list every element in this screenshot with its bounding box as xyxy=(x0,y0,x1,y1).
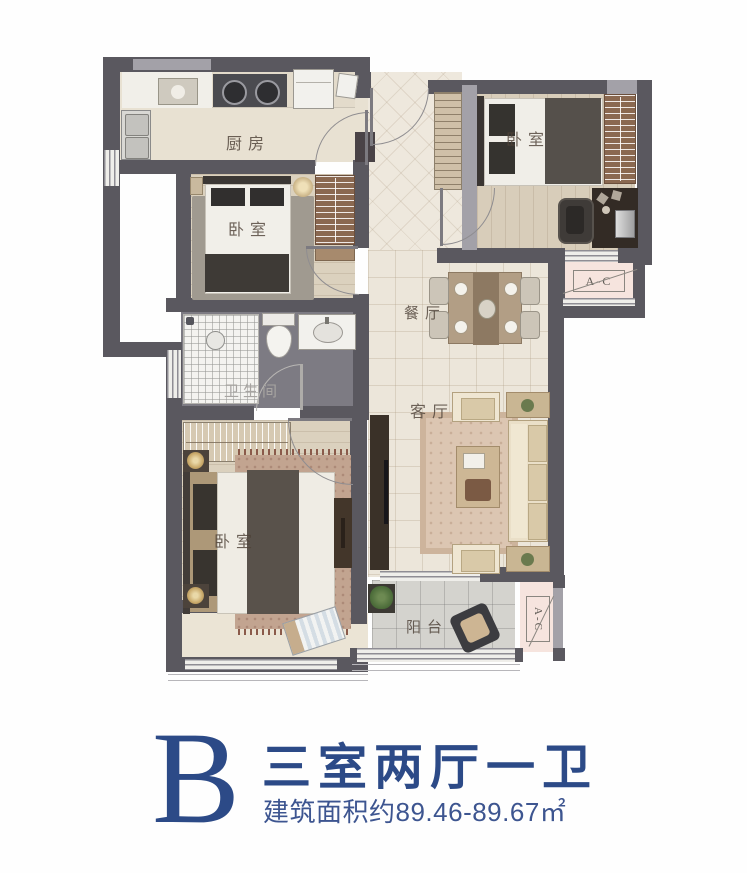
wall-segment xyxy=(166,298,368,312)
window-sill xyxy=(352,664,520,671)
dining-chair-icon xyxy=(520,277,540,305)
wall-segment xyxy=(553,648,565,661)
wall-segment xyxy=(119,160,315,174)
room-label-bedroom-east: 卧室 xyxy=(506,126,550,150)
desk-chair-icon xyxy=(558,198,594,244)
floor-plan: A-C A-C 厨房 卧室 卧室 餐厅 卫生间 客厅 卧室 阳台 xyxy=(0,0,747,700)
shoe-cabinet-icon xyxy=(434,92,462,190)
stove-icon xyxy=(213,74,287,107)
nightstand-icon xyxy=(190,177,203,195)
desk-icon xyxy=(592,188,638,248)
wall-segment xyxy=(548,310,564,577)
kitchen-door-leaf xyxy=(365,110,368,165)
sofa-icon xyxy=(508,420,548,542)
side-table-icon xyxy=(506,392,550,418)
window xyxy=(167,350,181,398)
wall-segment xyxy=(553,575,565,588)
armchair-icon xyxy=(452,544,500,574)
corner-shelf-icon xyxy=(335,73,358,100)
layout-name: 三室两厅一卫 xyxy=(262,728,598,799)
bedroom-north-door-leaf xyxy=(306,246,358,249)
bedroom-east-door-leaf xyxy=(440,188,443,246)
wall-segment xyxy=(103,57,120,357)
kitchen-sink-icon xyxy=(121,110,151,160)
dining-chair-icon xyxy=(520,311,540,339)
side-table-icon xyxy=(506,546,550,572)
room-label-bathroom: 卫生间 xyxy=(224,380,281,401)
window-sill xyxy=(168,674,368,681)
window xyxy=(185,659,337,670)
room-label-balcony: 阳台 xyxy=(406,616,448,637)
window xyxy=(104,150,119,186)
entry-door-leaf xyxy=(370,88,373,146)
wall-segment-light xyxy=(553,588,563,648)
wall-segment xyxy=(176,174,191,312)
cutting-board-icon xyxy=(158,78,198,105)
dining-chair-icon xyxy=(429,277,449,305)
bathroom-vanity-icon xyxy=(298,314,356,350)
room-label-dining: 餐厅 xyxy=(404,302,446,323)
plant-icon xyxy=(368,584,395,613)
wardrobe-icon xyxy=(604,94,636,184)
unit-letter: B xyxy=(152,712,240,844)
floorplan-page: { "floor_plan": { "rooms": [ {"id": "kit… xyxy=(0,0,747,873)
ac-unit-label-box: A-C xyxy=(526,596,550,642)
window xyxy=(565,250,618,262)
fridge-icon xyxy=(293,69,334,109)
area-text: 建筑面积约89.46-89.67㎡ xyxy=(263,792,566,829)
room-label-bedroom-north: 卧室 xyxy=(228,216,272,240)
armchair-icon xyxy=(452,392,500,422)
wardrobe-icon xyxy=(315,175,355,245)
nightstand-medallion-icon xyxy=(183,584,209,608)
dining-table-icon xyxy=(448,272,522,344)
nightstand-medallion-icon xyxy=(183,450,209,472)
tv-cabinet-icon xyxy=(370,415,389,570)
room-label-kitchen: 厨房 xyxy=(226,130,270,154)
wall-segment xyxy=(637,80,652,265)
wall-segment xyxy=(353,160,369,248)
wall-segment xyxy=(437,248,565,263)
bathroom-door-leaf xyxy=(300,364,303,410)
table-lamp-icon xyxy=(293,177,313,197)
window xyxy=(563,298,635,306)
toilet-icon xyxy=(262,313,294,359)
window xyxy=(357,648,515,662)
wall-segment xyxy=(166,406,254,420)
dresser-icon xyxy=(334,498,352,568)
coffee-table-icon xyxy=(456,446,500,508)
bedroom-master-door-leaf xyxy=(288,418,352,421)
room-label-living: 客厅 xyxy=(410,398,454,422)
title-block: B 三室两厅一卫 建筑面积约89.46-89.67㎡ xyxy=(0,700,747,873)
room-label-bedroom-master: 卧室 xyxy=(214,528,258,552)
wall-window-ledge xyxy=(133,59,211,70)
wall-segment xyxy=(563,306,639,318)
